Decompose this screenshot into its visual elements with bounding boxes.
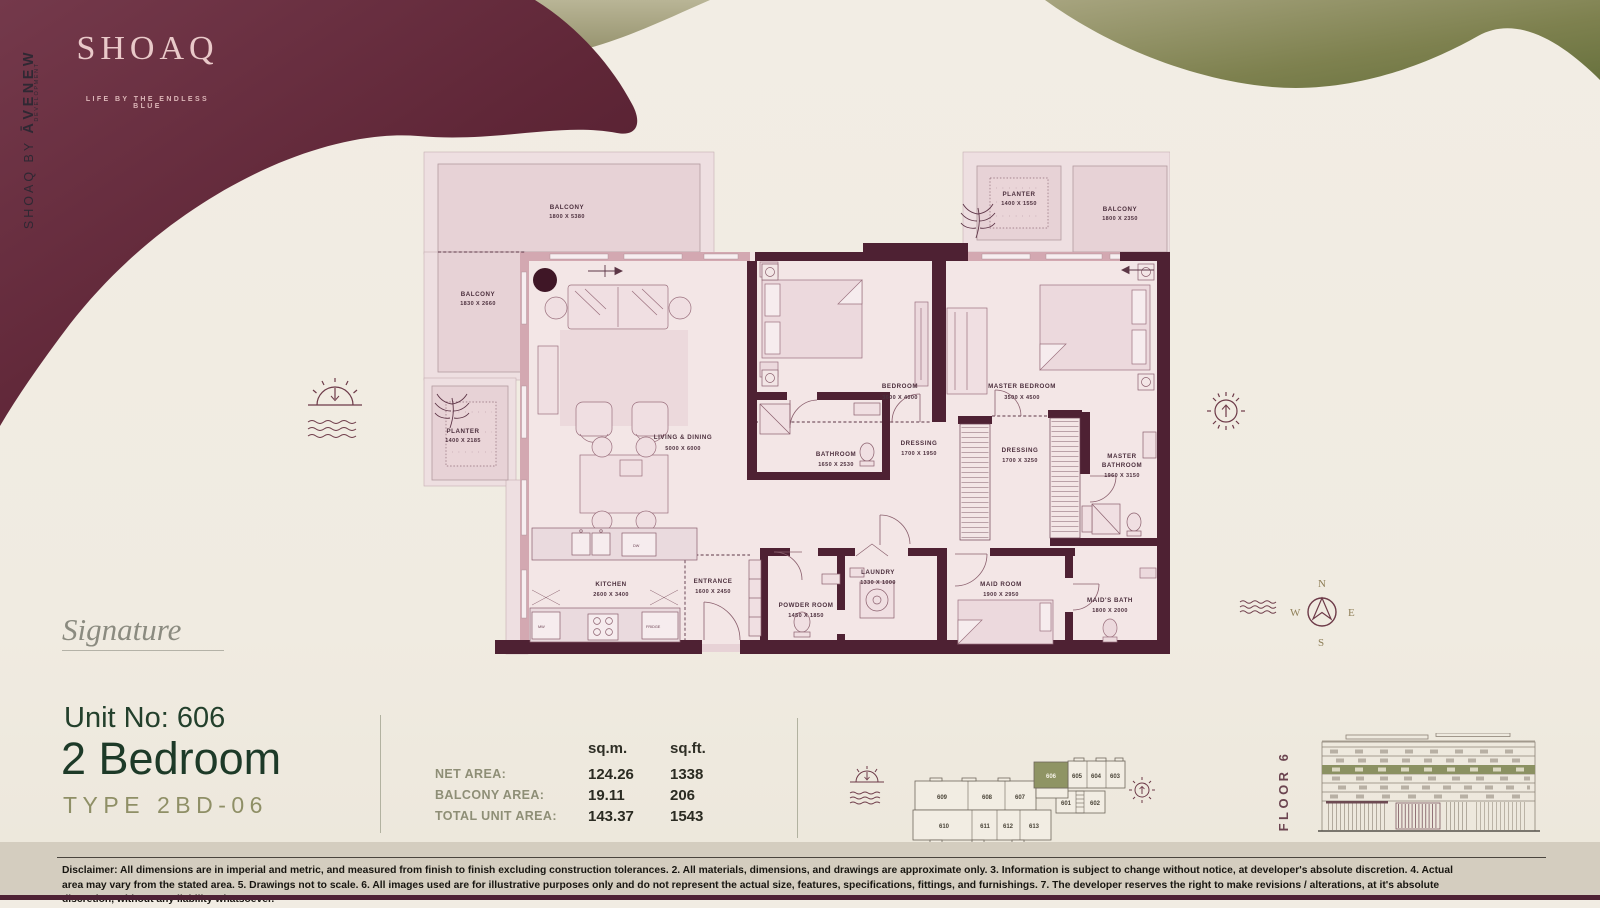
keyplan-unit-611: 611: [980, 824, 990, 830]
keyplan-unit-613: 613: [1029, 824, 1040, 830]
area-head-spacer: [435, 739, 588, 764]
label-mw: MW: [538, 625, 545, 629]
keyplan-unit-609: 609: [937, 795, 948, 801]
keyplan-unit-602: 602: [1090, 801, 1101, 807]
compass: N W E S: [1282, 565, 1362, 651]
brand-logo: SHOAQ: [75, 30, 220, 68]
keyplan-unit-607: 607: [1015, 795, 1026, 801]
area-col-sqft: sq.ft.: [670, 739, 740, 764]
side-prefix: SHOAQ BY: [22, 134, 36, 230]
compass-waves-icon: [1238, 598, 1282, 618]
sunset-icon: [300, 370, 370, 448]
floor-label: FLOOR 6: [1276, 746, 1292, 836]
signature-script: Signature: [62, 612, 232, 648]
keyplan-unit-606: 606: [1046, 774, 1057, 780]
signature-underline: [62, 650, 224, 651]
divider-left: [380, 715, 381, 833]
column: [533, 268, 557, 292]
area-row-sqft: 1543: [670, 806, 740, 827]
area-row-sqm: 19.11: [588, 785, 670, 806]
disclaimer-text: Disclaimer: All dimensions are in imperi…: [62, 864, 1454, 908]
keyplan-unit-603: 603: [1110, 774, 1121, 780]
keyplan-unit-604: 604: [1091, 774, 1102, 780]
brand-tagline: LIFE BY THE ENDLESS BLUE: [70, 96, 225, 110]
bottom-maroon-strip: [0, 895, 1600, 900]
comp-s: S: [1318, 637, 1324, 649]
keyplan-unit-612: 612: [1003, 824, 1014, 830]
area-col-sqm: sq.m.: [588, 739, 670, 764]
area-row-sqft: 206: [670, 785, 740, 806]
area-row-label: NET AREA:: [435, 764, 588, 785]
area-row-sqft: 1338: [670, 764, 740, 785]
brand-side-development: DEVELOPMENT: [34, 46, 42, 138]
sunrise-icon: [1198, 383, 1254, 439]
area-row-sqm: 124.26: [588, 764, 670, 785]
comp-n: N: [1318, 578, 1326, 590]
footer-rule: [57, 857, 1546, 858]
unit-bedrooms: 2 Bedroom: [61, 733, 281, 785]
divider-mid: [797, 718, 798, 838]
keyplan: 609 608 607 610 611 612 613 606 605 604 …: [900, 745, 1140, 845]
keyplan-sunset-icon: [845, 760, 889, 814]
building-elevation: [1318, 733, 1543, 838]
comp-w: W: [1290, 607, 1301, 619]
floor-plan: DW MW FRIDGE: [410, 150, 1170, 660]
olive-wave-right: [1045, 0, 1600, 88]
label-fridge: FRIDGE: [646, 625, 661, 629]
brochure-page: SHOAQ LIFE BY THE ENDLESS BLUE SHOAQ BY …: [0, 0, 1600, 900]
keyplan-unit-610: 610: [939, 824, 950, 830]
unit-type: TYPE 2BD-06: [63, 792, 268, 819]
keyplan-unit-601: 601: [1061, 801, 1072, 807]
keyplan-unit-608: 608: [982, 795, 993, 801]
area-table: sq.m. sq.ft. NET AREA: 124.26 1338 BALCO…: [435, 739, 740, 827]
room-label-master-bathroom: MASTERBATHROOM1960 X 3150: [1102, 453, 1142, 479]
comp-e: E: [1348, 607, 1355, 619]
area-row-sqm: 143.37: [588, 806, 670, 827]
area-row-label: TOTAL UNIT AREA:: [435, 806, 588, 827]
unit-number: Unit No: 606: [64, 702, 225, 735]
keyplan-unit-605: 605: [1072, 774, 1083, 780]
label-dw: DW: [633, 544, 640, 548]
area-row-label: BALCONY AREA:: [435, 785, 588, 806]
